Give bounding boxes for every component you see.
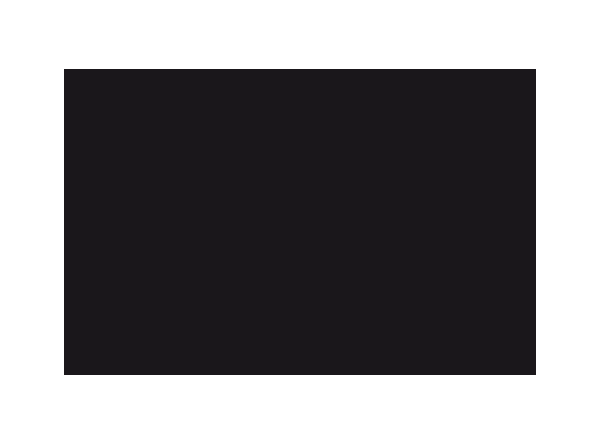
page-background	[0, 0, 600, 442]
dark-rectangle	[64, 69, 536, 375]
